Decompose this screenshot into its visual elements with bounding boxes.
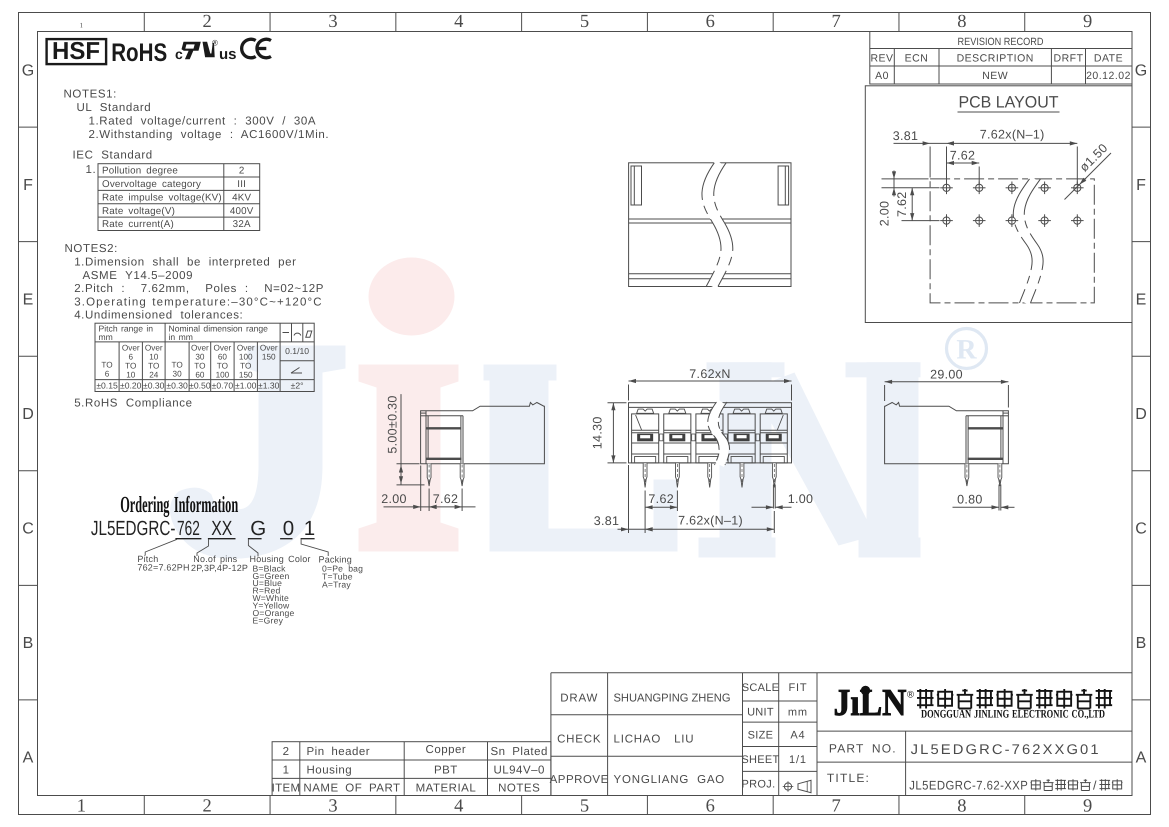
svg-text:PBT: PBT xyxy=(434,764,458,776)
svg-text:DESCRIPTION: DESCRIPTION xyxy=(957,53,1034,65)
svg-text:7.62: 7.62 xyxy=(895,191,909,217)
svg-text:REVISION RECORD: REVISION RECORD xyxy=(958,36,1044,48)
svg-text:LICHAO LIU: LICHAO LIU xyxy=(614,734,695,746)
svg-text:D: D xyxy=(1135,406,1147,423)
svg-text:TO: TO xyxy=(125,362,136,371)
svg-text:C: C xyxy=(1135,521,1147,538)
svg-text:DONGGUAN JINLING ELECTRONIC CO: DONGGUAN JINLING ELECTRONIC CO.,LTD xyxy=(921,708,1105,720)
svg-text:G: G xyxy=(250,517,266,540)
svg-text:3.81: 3.81 xyxy=(893,129,919,143)
svg-text:Sn Plated: Sn Plated xyxy=(491,746,548,758)
svg-text:Over: Over xyxy=(260,344,278,353)
svg-text:±1.00: ±1.00 xyxy=(235,381,257,391)
svg-text:60: 60 xyxy=(195,371,205,380)
svg-text:TO: TO xyxy=(171,361,182,370)
svg-text:7.62: 7.62 xyxy=(950,148,976,162)
svg-text:6: 6 xyxy=(128,353,133,362)
svg-text:TO: TO xyxy=(148,362,159,371)
svg-text:Rate voltage(V): Rate voltage(V) xyxy=(102,206,175,217)
svg-text:NEW: NEW xyxy=(982,70,1008,82)
svg-text:HSF: HSF xyxy=(52,38,100,65)
svg-text:Ordering Information: Ordering Information xyxy=(120,492,238,518)
svg-text:30: 30 xyxy=(195,353,205,362)
svg-text:150: 150 xyxy=(239,371,253,380)
svg-text:±0.70: ±0.70 xyxy=(212,381,234,391)
svg-text:2.00: 2.00 xyxy=(878,201,892,227)
svg-text:Pin header: Pin header xyxy=(307,746,371,758)
svg-text:24: 24 xyxy=(149,371,159,380)
svg-text:JL5EDGRC-: JL5EDGRC- xyxy=(91,517,175,540)
svg-text:5.RoHS Compliance: 5.RoHS Compliance xyxy=(74,398,192,410)
svg-text:±0.50: ±0.50 xyxy=(189,381,211,391)
svg-text:ECN: ECN xyxy=(905,53,929,65)
svg-text:7.62x(N–1): 7.62x(N–1) xyxy=(678,514,743,528)
svg-text:7.62: 7.62 xyxy=(648,492,674,506)
svg-text:29.00: 29.00 xyxy=(930,367,963,381)
svg-text:TO: TO xyxy=(217,362,228,371)
svg-text:2: 2 xyxy=(203,12,212,32)
svg-text:1: 1 xyxy=(80,22,84,30)
svg-text:G: G xyxy=(22,62,34,79)
svg-text:6: 6 xyxy=(706,12,715,32)
svg-text:DRAW: DRAW xyxy=(560,693,598,705)
svg-text:8: 8 xyxy=(957,797,966,817)
svg-text:1.: 1. xyxy=(86,164,97,176)
svg-text:C: C xyxy=(22,521,34,538)
svg-text:SCALE: SCALE xyxy=(742,682,780,694)
svg-text:NAME OF PART: NAME OF PART xyxy=(303,782,400,794)
svg-text:7.62: 7.62 xyxy=(433,492,459,506)
svg-text:CHECK: CHECK xyxy=(557,734,601,746)
svg-text:TO: TO xyxy=(101,361,112,370)
svg-text:G: G xyxy=(1135,62,1147,79)
svg-text:SIZE: SIZE xyxy=(748,730,774,742)
svg-text:NOTES2:: NOTES2: xyxy=(65,243,118,255)
svg-text:3.81: 3.81 xyxy=(594,514,620,528)
svg-text:4: 4 xyxy=(454,797,463,817)
svg-text:±0.30: ±0.30 xyxy=(143,381,165,391)
svg-text:5.00±0.30: 5.00±0.30 xyxy=(386,395,400,453)
svg-text:6: 6 xyxy=(105,370,110,379)
svg-text:E: E xyxy=(23,291,34,308)
svg-text:±0.15: ±0.15 xyxy=(96,381,118,391)
svg-text:D: D xyxy=(22,406,34,423)
svg-text:mm: mm xyxy=(99,332,113,342)
svg-text:Housing: Housing xyxy=(307,764,353,776)
svg-text:±0.30: ±0.30 xyxy=(166,381,188,391)
svg-text:7.62xN: 7.62xN xyxy=(689,367,730,381)
svg-text:3: 3 xyxy=(328,797,337,817)
svg-text:0.1/10: 0.1/10 xyxy=(285,346,309,356)
svg-text:YONGLIANG GAO: YONGLIANG GAO xyxy=(614,774,726,786)
svg-text:A0: A0 xyxy=(875,70,889,82)
svg-text:ITEM: ITEM xyxy=(272,782,301,794)
svg-text:6: 6 xyxy=(706,797,715,817)
svg-text:Over: Over xyxy=(214,344,232,353)
svg-text:A=Tray: A=Tray xyxy=(322,579,351,589)
svg-text:/: / xyxy=(1093,779,1097,793)
svg-text:Over: Over xyxy=(237,344,255,353)
svg-text:400V: 400V xyxy=(230,206,254,217)
svg-text:NOTES: NOTES xyxy=(498,782,540,794)
svg-text:Copper: Copper xyxy=(426,744,467,756)
svg-text:MATERIAL: MATERIAL xyxy=(416,782,477,794)
svg-text:B: B xyxy=(1136,635,1147,652)
svg-text:IEC Standard: IEC Standard xyxy=(73,150,153,162)
svg-text:7.62x(N–1): 7.62x(N–1) xyxy=(980,128,1045,142)
svg-text:E=Grey: E=Grey xyxy=(253,615,284,625)
svg-text:10: 10 xyxy=(149,353,159,362)
svg-text:PROJ.: PROJ. xyxy=(742,779,776,791)
svg-text:8: 8 xyxy=(957,12,966,32)
svg-text:7: 7 xyxy=(831,797,840,817)
svg-text:Overvoltage category: Overvoltage category xyxy=(102,179,201,190)
svg-text:10: 10 xyxy=(126,371,136,380)
svg-text:FIT: FIT xyxy=(788,682,807,694)
svg-text:TO: TO xyxy=(194,362,205,371)
svg-text:NOTES1:: NOTES1: xyxy=(64,89,117,101)
svg-text:1: 1 xyxy=(304,517,315,540)
svg-text:762: 762 xyxy=(177,517,200,540)
svg-text:32A: 32A xyxy=(233,219,251,230)
svg-text:4.Undimensioned tolerances:: 4.Undimensioned tolerances: xyxy=(74,310,243,322)
svg-text:F: F xyxy=(1136,177,1146,194)
svg-text:±0.20: ±0.20 xyxy=(120,381,142,391)
svg-text:0.80: 0.80 xyxy=(957,493,983,507)
svg-text:PART NO.: PART NO. xyxy=(829,742,897,756)
svg-text:XX: XX xyxy=(211,517,232,540)
svg-text:150: 150 xyxy=(262,353,276,362)
svg-text:DRFT: DRFT xyxy=(1054,53,1084,65)
svg-text:100: 100 xyxy=(239,353,253,362)
svg-text:5: 5 xyxy=(580,797,589,817)
svg-text:TO: TO xyxy=(240,362,251,371)
svg-text:A4: A4 xyxy=(790,730,805,742)
svg-text:2: 2 xyxy=(203,797,212,817)
svg-text:APPROVE: APPROVE xyxy=(550,774,609,786)
svg-text:ASME Y14.5–2009: ASME Y14.5–2009 xyxy=(83,270,194,282)
svg-text:1.Dimension shall be interpret: 1.Dimension shall be interpreted per xyxy=(74,257,296,269)
svg-text:Over: Over xyxy=(122,344,140,353)
svg-text:7: 7 xyxy=(831,12,840,32)
svg-text:100: 100 xyxy=(216,371,230,380)
svg-text:30: 30 xyxy=(173,370,183,379)
svg-text:UL Standard: UL Standard xyxy=(77,102,152,114)
svg-text:R: R xyxy=(956,335,977,366)
svg-text:A: A xyxy=(1136,750,1147,767)
svg-text:3: 3 xyxy=(328,12,337,32)
svg-text:3.Operating temperature:–30°C~: 3.Operating temperature:–30°C~+120°C xyxy=(74,296,323,308)
svg-text:UL94V–0: UL94V–0 xyxy=(493,764,544,776)
svg-text:1.Rated voltage/current : 300V: 1.Rated voltage/current : 300V / 30A xyxy=(89,116,317,128)
svg-text:2: 2 xyxy=(239,166,245,177)
svg-text:Rate current(A): Rate current(A) xyxy=(102,219,174,230)
svg-text:±1.30: ±1.30 xyxy=(258,381,280,391)
svg-text:REV: REV xyxy=(870,53,893,65)
svg-text:E: E xyxy=(1136,291,1147,308)
svg-text:JL5EDGRC-7.62-XXP: JL5EDGRC-7.62-XXP xyxy=(909,779,1028,793)
svg-text:TITLE:: TITLE: xyxy=(827,771,870,785)
svg-text:2.Withstanding voltage : AC160: 2.Withstanding voltage : AC1600V/1Min. xyxy=(89,129,330,141)
svg-text:PCB LAYOUT: PCB LAYOUT xyxy=(959,94,1059,112)
svg-text:RoHS: RoHS xyxy=(111,39,167,67)
svg-text:0: 0 xyxy=(283,517,294,540)
svg-text:60: 60 xyxy=(218,353,228,362)
svg-text:1: 1 xyxy=(77,797,86,817)
svg-text:B: B xyxy=(23,635,34,652)
svg-text:III: III xyxy=(237,179,246,190)
svg-text:2P,3P,4P-12P: 2P,3P,4P-12P xyxy=(191,563,248,573)
svg-text:762=7.62PH: 762=7.62PH xyxy=(137,563,189,573)
svg-text:9: 9 xyxy=(1083,797,1092,817)
svg-text:SHUANGPING ZHENG: SHUANGPING ZHENG xyxy=(614,693,731,705)
svg-text:1.00: 1.00 xyxy=(788,492,814,506)
svg-text:1/1: 1/1 xyxy=(789,754,807,766)
svg-text:®: ® xyxy=(212,39,218,48)
svg-text:4: 4 xyxy=(454,12,463,32)
svg-text:Pollution degree: Pollution degree xyxy=(102,166,178,177)
svg-text:5: 5 xyxy=(580,12,589,32)
svg-text:2.00: 2.00 xyxy=(381,492,407,506)
svg-text:in mm: in mm xyxy=(169,332,193,342)
svg-text:SHEET: SHEET xyxy=(741,754,779,766)
svg-text:Rate impulse voltage(KV): Rate impulse voltage(KV) xyxy=(102,192,222,203)
svg-text:2.Pitch : 7.62mm, Poles : N: 2.Pitch : 7.62mm, Poles : N=02~12P xyxy=(74,283,324,295)
svg-text:9: 9 xyxy=(1083,12,1092,32)
svg-text:F: F xyxy=(23,177,33,194)
svg-text:A: A xyxy=(23,750,34,767)
svg-text:1: 1 xyxy=(283,764,290,776)
svg-text:2: 2 xyxy=(283,746,290,758)
svg-text:4KV: 4KV xyxy=(232,192,251,203)
svg-text:JL5EDGRC-762XXG01: JL5EDGRC-762XXG01 xyxy=(911,741,1101,757)
svg-text:Over: Over xyxy=(145,344,163,353)
svg-text:Over: Over xyxy=(191,344,209,353)
svg-text:JıLN: JıLN xyxy=(834,682,907,724)
svg-text:±2°: ±2° xyxy=(291,381,304,391)
svg-text:®: ® xyxy=(907,690,914,701)
svg-text:UNIT: UNIT xyxy=(747,707,774,719)
svg-text:DATE: DATE xyxy=(1094,53,1123,65)
svg-text:us: us xyxy=(219,46,237,63)
svg-text:mm: mm xyxy=(788,707,808,719)
svg-text:14.30: 14.30 xyxy=(591,416,605,449)
svg-text:20.12.02: 20.12.02 xyxy=(1086,70,1131,82)
